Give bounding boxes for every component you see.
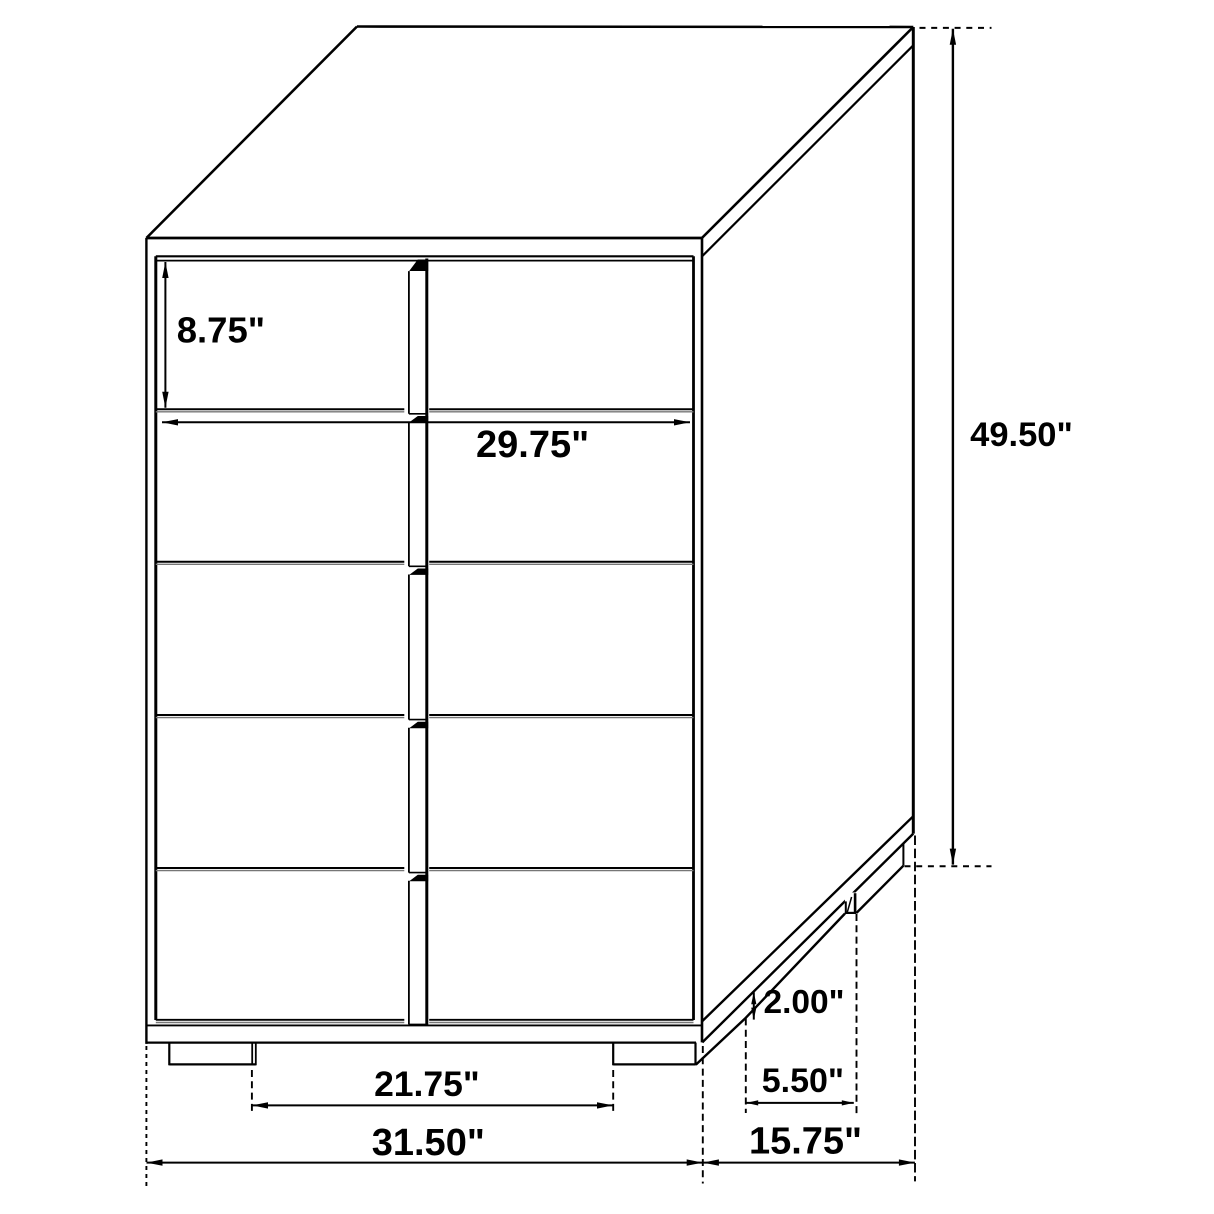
svg-text:5.50": 5.50"	[762, 1062, 844, 1100]
svg-text:8.75": 8.75"	[177, 309, 265, 350]
svg-text:21.75": 21.75"	[374, 1064, 480, 1104]
svg-text:2.00": 2.00"	[763, 984, 844, 1021]
svg-text:15.75": 15.75"	[749, 1121, 862, 1163]
svg-text:31.50": 31.50"	[372, 1122, 485, 1164]
svg-text:49.50": 49.50"	[970, 416, 1073, 454]
svg-text:29.75": 29.75"	[476, 424, 589, 466]
